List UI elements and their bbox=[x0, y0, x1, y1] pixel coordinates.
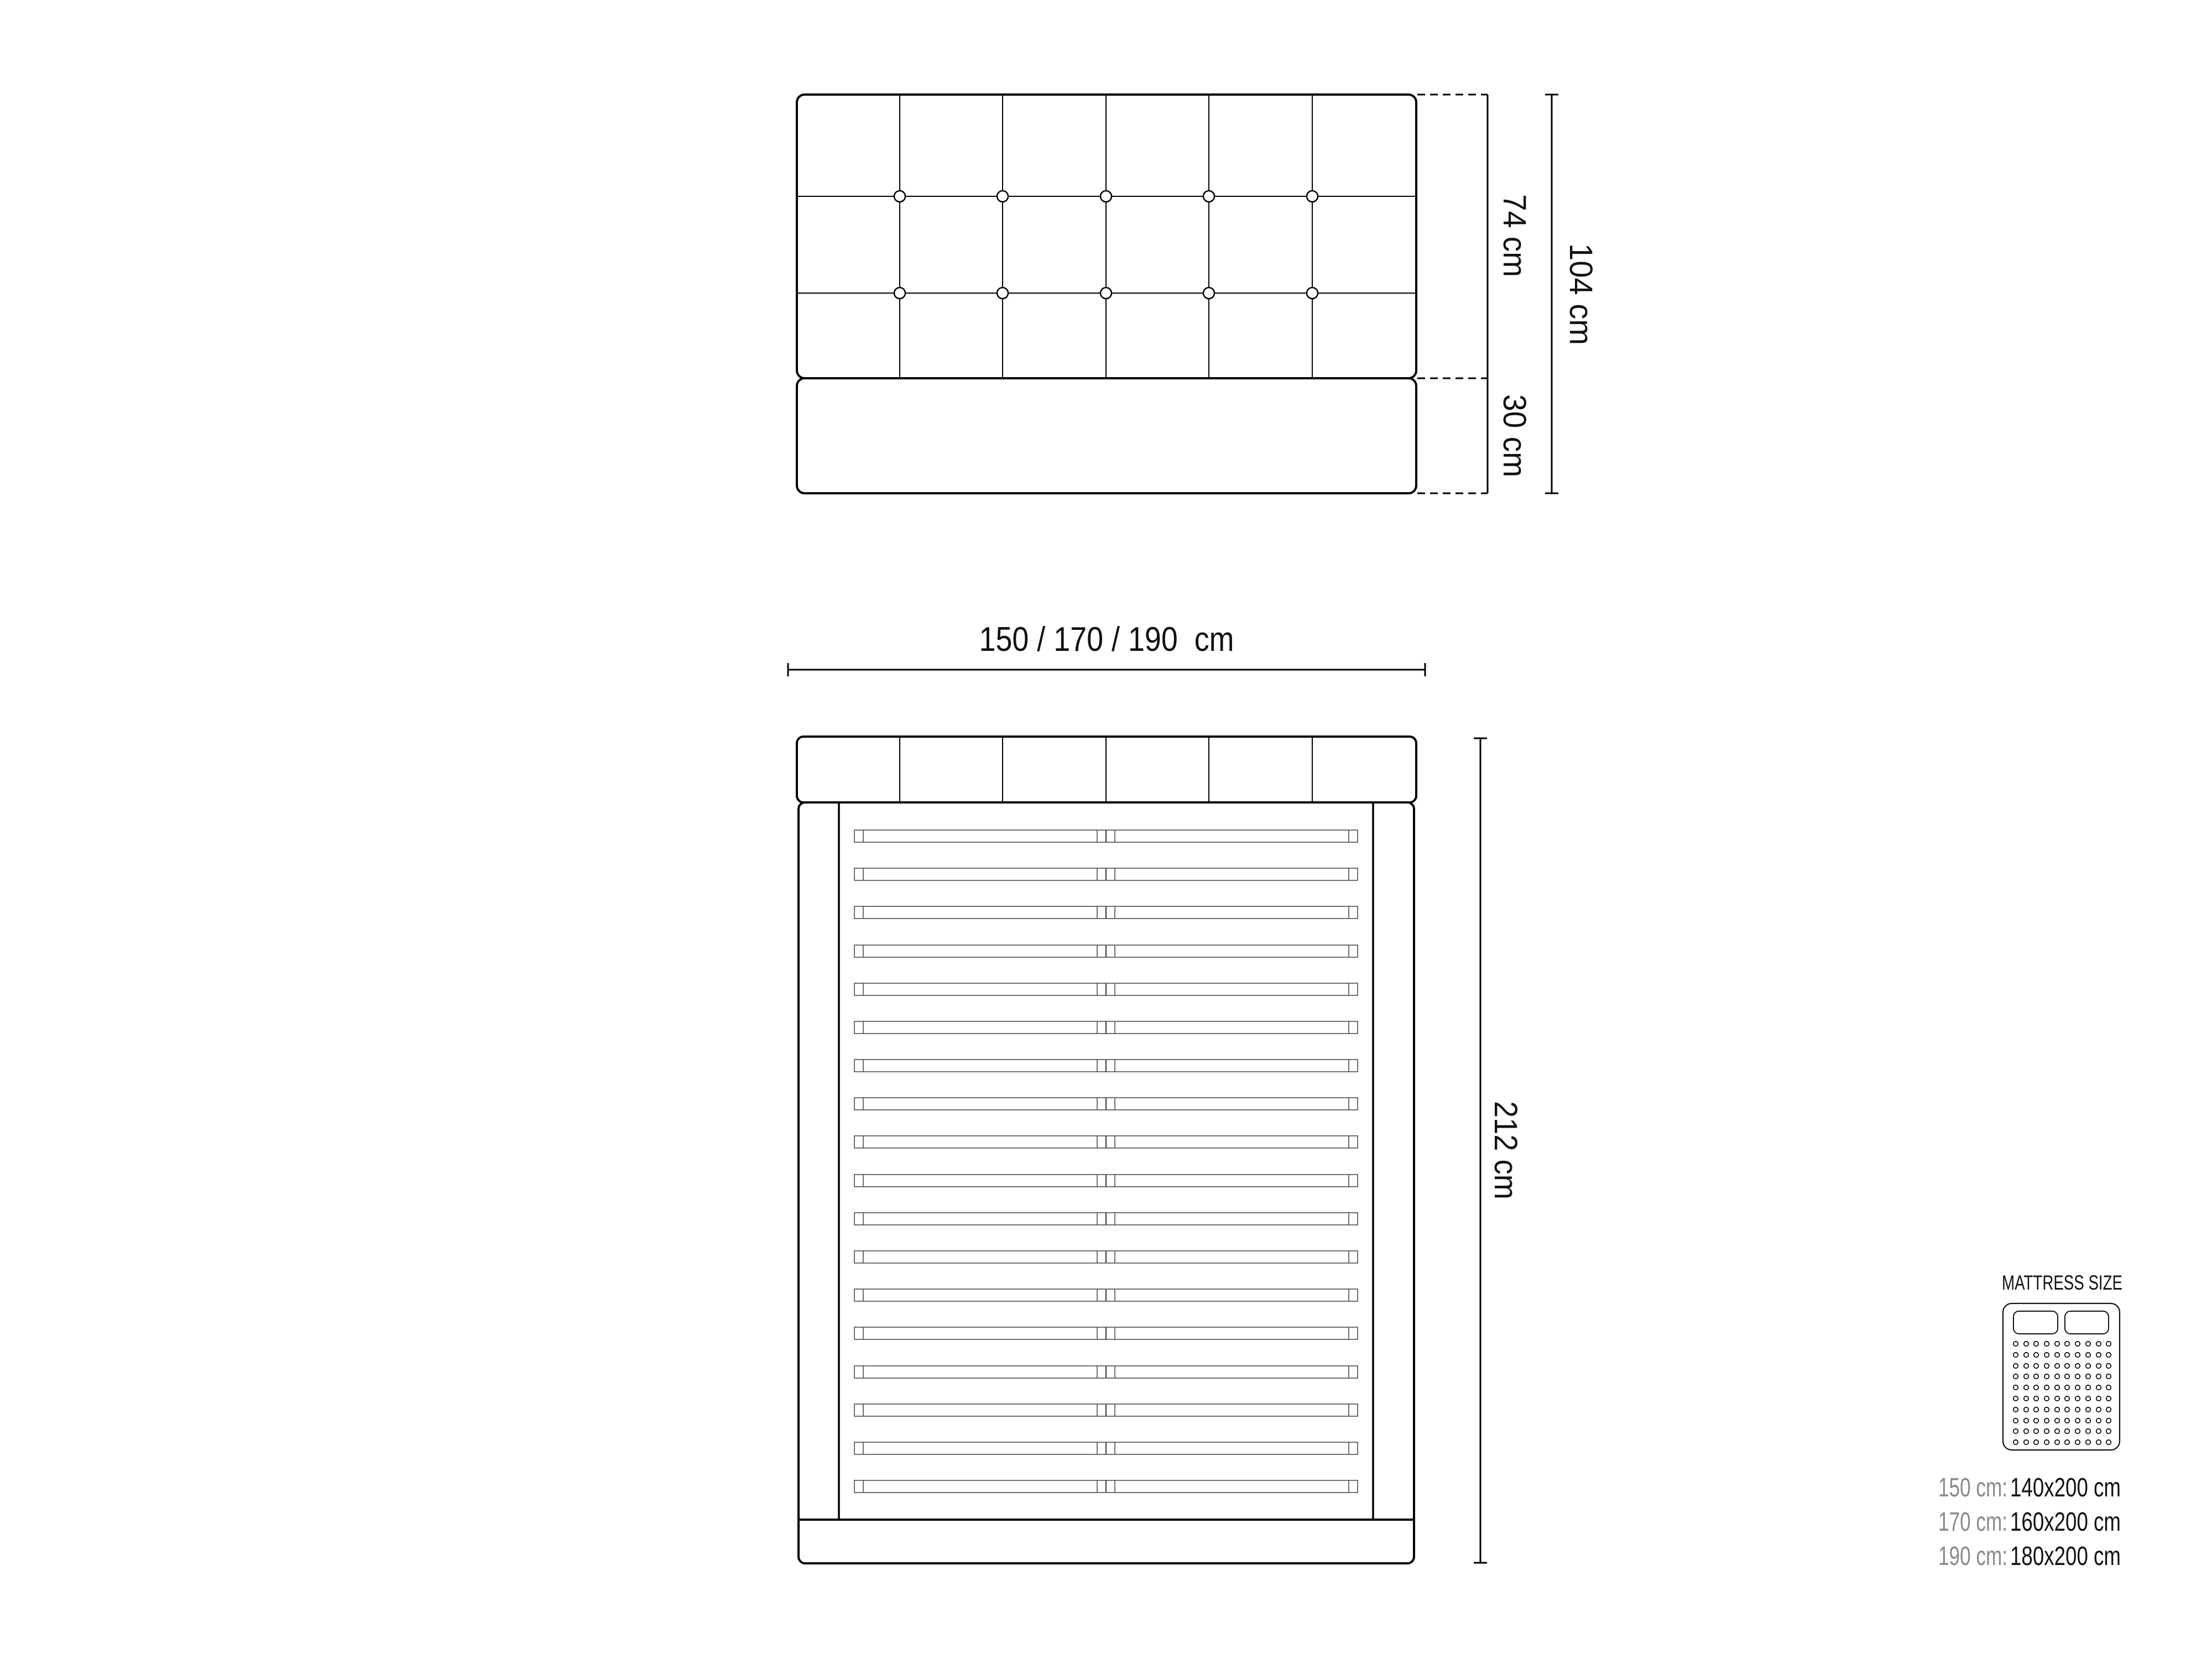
svg-text:190 cm:: 190 cm: bbox=[1938, 1542, 2007, 1571]
svg-text:30 cm: 30 cm bbox=[1496, 394, 1532, 477]
svg-text:150 cm:: 150 cm: bbox=[1938, 1473, 2007, 1503]
svg-text:170 cm:: 170 cm: bbox=[1938, 1507, 2007, 1537]
svg-text:150 / 170 / 190 cm: 150 / 170 / 190 cm bbox=[979, 620, 1234, 659]
svg-text:160x200 cm: 160x200 cm bbox=[2010, 1507, 2121, 1537]
svg-text:212 cm: 212 cm bbox=[1488, 1101, 1524, 1199]
svg-text:140x200 cm: 140x200 cm bbox=[2010, 1473, 2121, 1503]
svg-text:MATTRESS SIZE: MATTRESS SIZE bbox=[2002, 1271, 2122, 1294]
svg-text:180x200 cm: 180x200 cm bbox=[2010, 1542, 2121, 1571]
svg-text:104 cm: 104 cm bbox=[1563, 243, 1599, 345]
svg-text:74 cm: 74 cm bbox=[1496, 194, 1532, 277]
